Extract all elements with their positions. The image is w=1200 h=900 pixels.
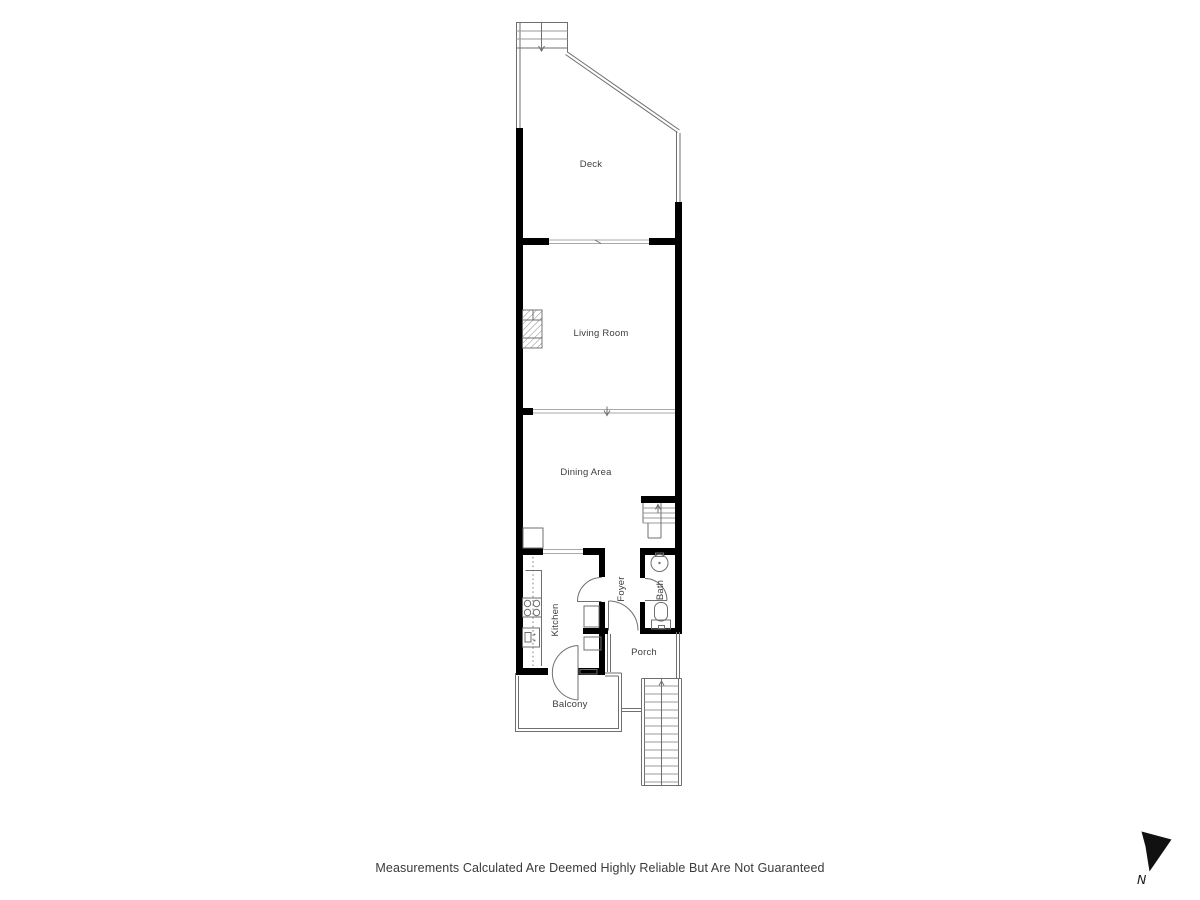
kitchen-cabinet (580, 606, 601, 674)
interior-stairs (643, 503, 675, 538)
kitchen-sink-icon (523, 628, 540, 647)
kitchen-passage-opening (543, 550, 583, 554)
north-arrow-icon: N (1137, 832, 1172, 888)
room-label-deck: Deck (580, 159, 602, 170)
sliding-door-opening (549, 240, 649, 244)
room-label-bath: Bath (655, 580, 666, 600)
entry-door-arc (609, 601, 639, 631)
fireplace-icon (523, 310, 543, 348)
dining-counter (523, 528, 543, 548)
room-label-porch: Porch (631, 647, 657, 658)
room-label-foyer: Foyer (616, 576, 627, 601)
floor-plan-page: { "css_vars": { "--bg": "#ffffff", "--wa… (0, 0, 1200, 900)
kitchen-door-arc (577, 578, 602, 602)
disclaimer-text: Measurements Calculated Are Deemed Highl… (0, 861, 1200, 875)
floor-plan: Deck Living Room Dining Area Kitchen Foy… (0, 0, 1200, 900)
deck-stairs (517, 23, 568, 52)
room-label-dining-area: Dining Area (560, 467, 612, 478)
stove-icon (523, 598, 542, 617)
exterior-stairs (642, 679, 682, 786)
room-label-living-room: Living Room (573, 328, 628, 339)
living-dining-opening (533, 407, 675, 416)
room-label-kitchen: Kitchen (550, 603, 561, 636)
toilet-icon (652, 603, 671, 630)
balcony-door-arc (552, 646, 578, 701)
room-label-balcony: Balcony (552, 699, 587, 710)
bath-sink-icon (651, 553, 668, 572)
